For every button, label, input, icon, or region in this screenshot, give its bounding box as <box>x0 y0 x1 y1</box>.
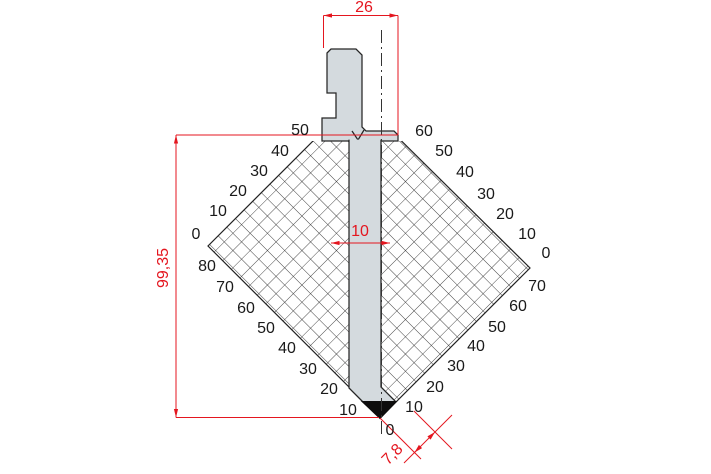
scale-label-upper-left-30: 30 <box>250 164 268 180</box>
scale-label-upper-left-20: 20 <box>229 184 247 200</box>
scale-label-lower-left-50: 50 <box>257 321 275 337</box>
scale-label-lower-left-70: 70 <box>216 280 234 296</box>
scale-label-lower-right-70: 70 <box>528 279 546 295</box>
scale-label-lower-right-60: 60 <box>509 299 527 315</box>
scale-label-upper-right-50: 50 <box>435 144 453 160</box>
dim-text-left-height: 99,35 <box>156 248 172 288</box>
punch-tip <box>362 402 397 419</box>
scale-label-lower-left-30: 30 <box>299 362 317 378</box>
scale-label-lower-right-10: 10 <box>405 400 423 416</box>
scale-label-upper-right-40: 40 <box>456 165 474 181</box>
scale-label-upper-left-40: 40 <box>271 144 289 160</box>
scale-label-lower-left-10: 10 <box>339 403 357 419</box>
scale-label-upper-right-20: 20 <box>496 207 514 223</box>
dim-text-stem-width: 10 <box>351 224 369 240</box>
scale-label-upper-right-30: 30 <box>477 187 495 203</box>
dim-text-top-width: 26 <box>355 0 373 16</box>
scale-label-lower-right-20: 20 <box>426 380 444 396</box>
scale-label-lower-left-60: 60 <box>237 301 255 317</box>
scale-label-lower-right-30: 30 <box>447 359 465 375</box>
scale-label-lower-left-80: 80 <box>198 259 216 275</box>
scale-label-lower-left-20: 20 <box>320 382 338 398</box>
scale-label-upper-right-0: 0 <box>542 246 551 262</box>
scale-label-lower-left-40: 40 <box>278 341 296 357</box>
scale-label-upper-left-50: 50 <box>291 123 309 139</box>
scale-label-upper-left-0: 0 <box>192 227 201 243</box>
scale-label-upper-right-10: 10 <box>518 227 536 243</box>
scale-label-upper-left-10: 10 <box>209 204 227 220</box>
scale-label-lower-right-0: 0 <box>386 423 395 439</box>
technical-drawing: 26 99,35 10 7,8 504030201008070605040302… <box>0 0 711 474</box>
scale-label-upper-right-60: 60 <box>415 124 433 140</box>
scale-label-lower-right-40: 40 <box>467 339 485 355</box>
scale-label-lower-right-50: 50 <box>488 320 506 336</box>
